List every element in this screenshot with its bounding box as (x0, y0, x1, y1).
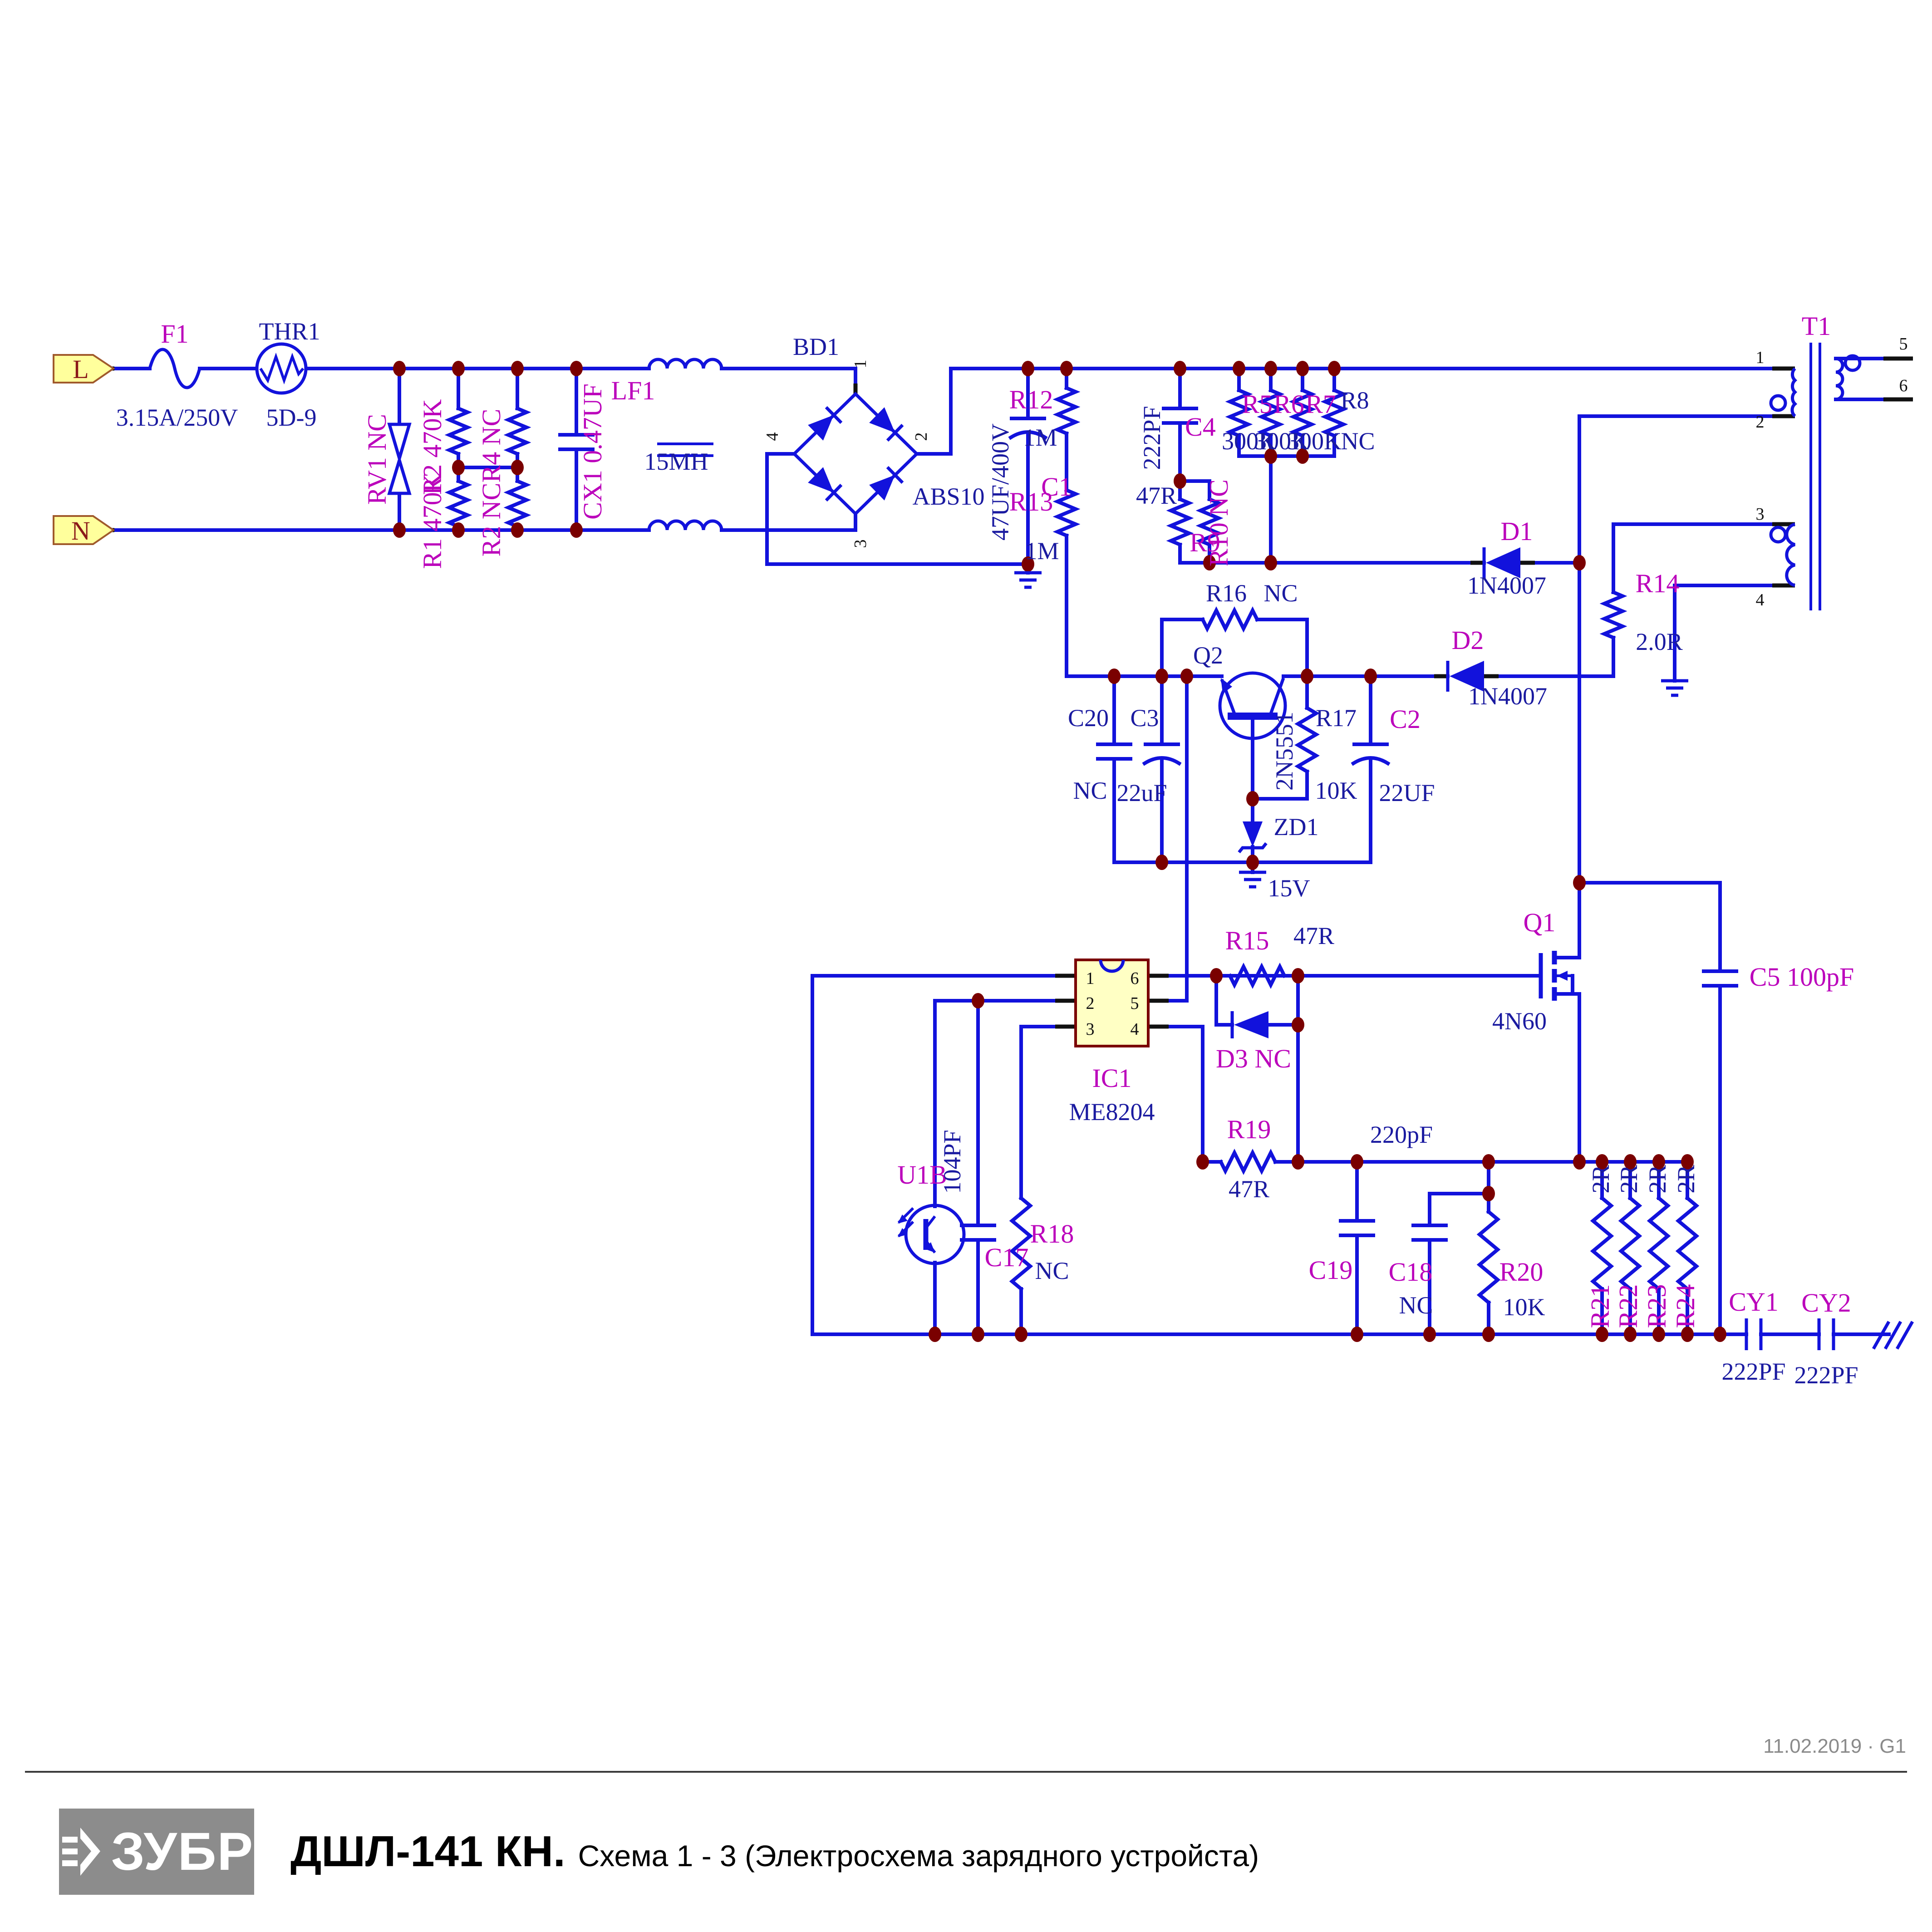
label-r20: R20 (1499, 1257, 1544, 1287)
label-r22-value: 2R (1615, 1165, 1642, 1193)
label-r14: R14 (1636, 569, 1680, 598)
label-r13-value: 1M (1025, 537, 1059, 565)
resistor-r1 (449, 481, 467, 526)
ic1-pin6: 6 (1131, 969, 1139, 988)
label-q2-value: 2N5551 (1271, 712, 1298, 791)
label-r13: R13 (1009, 487, 1053, 516)
junction-dot (1060, 361, 1073, 376)
resistor-r2b (508, 481, 526, 526)
label-c3-value: 22uF (1116, 779, 1167, 806)
zubr-logo: ЗУБР (59, 1809, 254, 1895)
label-lf1-value: 15MH (644, 448, 708, 475)
label-d2-value: 1N4007 (1468, 683, 1547, 710)
label-r8: R8 (1340, 387, 1369, 414)
label-r21-value: 2R (1587, 1165, 1614, 1193)
junction-dot (972, 1327, 984, 1342)
junction-dot (511, 522, 524, 538)
label-c4-value: 222PF (1138, 406, 1165, 470)
ic1-pin4: 4 (1131, 1020, 1139, 1039)
label-r10: R10 NC (1204, 479, 1234, 566)
junction-dot (1423, 1327, 1436, 1342)
junction-dot (1264, 555, 1277, 570)
label-r7: R7 (1305, 389, 1336, 419)
resistor-r17 (1298, 708, 1316, 772)
junction-dot (1573, 875, 1586, 890)
label-cy1: CY1 (1729, 1287, 1779, 1317)
t1-pin3: 3 (1756, 505, 1765, 524)
model-title: ДШЛ-141 КН. (290, 1827, 565, 1877)
title-row: ДШЛ-141 КН. Схема 1 - 3 (Электросхема за… (290, 1827, 1259, 1877)
fuse-icon (150, 349, 200, 388)
label-r17-value: 10K (1315, 777, 1357, 804)
choke-lf1-icon (649, 359, 722, 530)
junction-dot (1351, 1154, 1363, 1170)
resistor-r4 (508, 408, 526, 454)
label-rv1: RV1 NC (362, 414, 392, 505)
label-f1-value: 3.15A/250V (116, 404, 238, 431)
label-c18: C18 (1389, 1257, 1433, 1287)
label-r16: R16 (1206, 580, 1247, 607)
junction-dot (1155, 669, 1168, 684)
resistor-r16 (1203, 610, 1257, 629)
label-q1-value: 4N60 (1492, 1008, 1547, 1035)
label-r12: R12 (1009, 385, 1053, 414)
junction-dot (511, 460, 524, 475)
ic1-pin2: 2 (1086, 994, 1095, 1013)
junction-dot (1015, 1327, 1027, 1342)
label-r12-value: 1M (1023, 424, 1057, 451)
label-cy2: CY2 (1801, 1288, 1851, 1317)
resistor-r20 (1480, 1212, 1498, 1303)
thermistor-icon (257, 344, 306, 393)
label-r14-value: 2.0R (1636, 628, 1683, 655)
label-r24: R24 (1671, 1284, 1700, 1328)
junction-dot (1328, 361, 1341, 376)
ic1-pin3: 3 (1086, 1020, 1095, 1039)
label-r21: R21 (1585, 1284, 1615, 1328)
junction-dot (1301, 669, 1313, 684)
junction-dot (1108, 669, 1121, 684)
label-d3: D3 NC (1216, 1044, 1291, 1073)
t1-pin6: 6 (1899, 376, 1908, 395)
label-r9-value: 47R (1136, 482, 1177, 509)
junction-dot (1174, 361, 1186, 376)
resistor-r14 (1604, 592, 1622, 638)
label-r16-value: NC (1263, 580, 1298, 607)
junction-dot (972, 993, 984, 1008)
bd1-pin3: 3 (851, 540, 870, 548)
t1-pin2: 2 (1756, 413, 1765, 432)
junction-dot (1573, 1154, 1586, 1170)
label-lf1: LF1 (611, 376, 655, 405)
resistor-r12 (1057, 388, 1076, 433)
capacitor-cy2-icon (1819, 1318, 1834, 1350)
schematic-page: { "labels": { "term_l": "L", "term_n": "… (0, 0, 1932, 1932)
label-c19: C19 (1309, 1255, 1353, 1285)
label-q1: Q1 (1524, 908, 1556, 937)
wire (1216, 976, 1232, 1025)
junction-dot (1351, 1327, 1363, 1342)
label-c20: C20 (1068, 704, 1109, 732)
schema-subtitle: Схема 1 - 3 (Электросхема зарядного устр… (578, 1839, 1259, 1873)
junction-dot (1482, 1186, 1495, 1201)
label-d2: D2 (1452, 625, 1484, 655)
t1-pin1: 1 (1756, 348, 1765, 367)
label-c17: C17 (985, 1243, 1029, 1272)
junction-dot (452, 522, 465, 538)
footer-divider (25, 1771, 1907, 1773)
junction-dot (1292, 1017, 1304, 1032)
diode-d3-icon (1232, 1011, 1268, 1038)
revision-date: 11.02.2019 · G1 (1763, 1735, 1906, 1757)
optocoupler-u1b-icon (898, 1205, 964, 1263)
t1-pin5: 5 (1899, 334, 1908, 354)
footer: ЗУБР ДШЛ-141 КН. Схема 1 - 3 (Электросхе… (59, 1809, 1259, 1895)
zubr-arrow-icon (59, 1823, 103, 1880)
label-cy2-value: 222PF (1794, 1362, 1858, 1389)
ic1-pin1: 1 (1086, 969, 1095, 988)
label-r24-value: 2R (1672, 1165, 1700, 1193)
label-r19: R19 (1227, 1115, 1271, 1144)
label-c4: C4 (1185, 412, 1216, 442)
label-r23-value: 2R (1644, 1165, 1671, 1193)
ground-symbol (1239, 872, 1266, 887)
junction-dot (1681, 1327, 1694, 1342)
junction-dot (1364, 669, 1377, 684)
label-cx1: CX1 0.47UF (578, 383, 607, 520)
capacitor-cy1-icon (1746, 1318, 1761, 1350)
varistor-icon (389, 424, 409, 493)
ground-symbol (1014, 573, 1042, 587)
label-c3: C3 (1130, 704, 1159, 732)
label-r7-value: 300K (1287, 428, 1342, 455)
label-r8-value: NC (1341, 428, 1375, 455)
label-c2: C2 (1390, 704, 1421, 734)
t1-pin4: 4 (1756, 590, 1765, 610)
label-d1: D1 (1501, 516, 1533, 546)
label-zd1-value: 15V (1268, 875, 1310, 902)
label-r20-value: 10K (1503, 1293, 1545, 1321)
junction-dot (393, 522, 406, 538)
junction-dot (1573, 555, 1586, 570)
junction-dot (452, 361, 465, 376)
ground-symbol (1661, 681, 1688, 695)
junction-dot (1196, 1154, 1209, 1170)
junction-dot (1482, 1327, 1495, 1342)
label-r4: R4 NC (477, 409, 506, 483)
label-zd1: ZD1 (1274, 813, 1319, 841)
junction-dot (570, 522, 583, 538)
bd1-pin1: 1 (851, 360, 870, 369)
junction-dot (1482, 1154, 1495, 1170)
label-c1-value: 47UF/400V (987, 423, 1014, 541)
junction-dot (1210, 968, 1223, 983)
resistor-r19 (1221, 1153, 1275, 1171)
wire (1067, 536, 1114, 676)
bridge-rectifier-icon (794, 394, 917, 514)
label-t1: T1 (1802, 311, 1831, 341)
label-r18-value: NC (1035, 1257, 1069, 1284)
terminal-l-label: L (73, 354, 88, 384)
label-d1-value: 1N4007 (1467, 572, 1546, 599)
resistor-r22 (1621, 1198, 1639, 1289)
junction-dot (1596, 1327, 1608, 1342)
label-r15-value: 47R (1293, 922, 1334, 949)
label-r5: R5 (1242, 389, 1273, 419)
label-r18: R18 (1030, 1219, 1074, 1249)
junction-dot (570, 361, 583, 376)
label-r6: R6 (1273, 389, 1304, 419)
junction-dot (1264, 361, 1277, 376)
wire (722, 369, 855, 394)
junction-dot (1624, 1327, 1637, 1342)
label-r2b: R2 NC (477, 483, 506, 557)
label-r15: R15 (1225, 926, 1269, 955)
junction-dot (1155, 855, 1168, 870)
label-r22: R22 (1613, 1284, 1643, 1328)
label-c2-value: 22UF (1379, 779, 1435, 806)
zubr-logo-text: ЗУБР (111, 1821, 254, 1883)
terminal-n-label: N (71, 516, 90, 546)
label-cy1-value: 222PF (1721, 1358, 1785, 1385)
junction-dot (1292, 968, 1304, 983)
label-bd1: BD1 (793, 333, 839, 360)
resistor-r21 (1593, 1198, 1611, 1289)
resistor-r24 (1678, 1198, 1696, 1289)
resistor-r15 (1230, 967, 1284, 985)
resistor-r2a (449, 408, 467, 454)
bd1-pin4: 4 (763, 433, 782, 441)
label-q2: Q2 (1193, 642, 1223, 669)
junction-dot (1233, 361, 1245, 376)
junction-dot (1180, 669, 1193, 684)
resistor-r23 (1650, 1198, 1668, 1289)
wire (1021, 1027, 1055, 1198)
label-r1: R1 470K (418, 473, 447, 569)
junction-dot (1246, 791, 1259, 806)
label-r17: R17 (1316, 704, 1357, 732)
wire (1169, 676, 1187, 1001)
junction-dot (393, 361, 406, 376)
label-r23: R23 (1642, 1284, 1671, 1328)
label-ic1: IC1 (1092, 1063, 1132, 1093)
junction-dot (1296, 361, 1309, 376)
label-c17-value: 104PF (939, 1130, 966, 1194)
junction-dot (511, 361, 524, 376)
wire (722, 514, 855, 530)
wire (1169, 1027, 1221, 1162)
label-c19-value: 220pF (1370, 1121, 1433, 1148)
junction-dot (929, 1327, 941, 1342)
label-thr1-value: 5D-9 (266, 404, 317, 431)
label-thr1: THR1 (259, 318, 320, 345)
wire (1257, 619, 1307, 676)
junction-dot (1714, 1327, 1726, 1342)
junction-dot (1246, 855, 1259, 870)
bd1-pin2: 2 (912, 433, 931, 441)
wire (1579, 883, 1720, 971)
label-ic1-value: ME8204 (1069, 1098, 1155, 1126)
label-r19-value: 47R (1229, 1175, 1269, 1203)
label-f1: F1 (161, 319, 188, 349)
ic1-pin5: 5 (1131, 994, 1139, 1013)
label-c20-value: NC (1073, 777, 1107, 804)
junction-dot (1652, 1327, 1665, 1342)
label-bd1-value: ABS10 (912, 483, 984, 510)
label-c18-value: NC (1399, 1292, 1433, 1319)
zener-zd1-icon (1239, 821, 1266, 852)
label-c5: C5 100pF (1750, 962, 1854, 992)
junction-dot (1292, 1154, 1304, 1170)
circuit-schematic: L N F1 3.15A/250V THR1 5D-9 RV1 NC R2 47… (0, 0, 1932, 1772)
transformer-t1-icon (1771, 343, 1860, 610)
junction-dot (1022, 361, 1034, 376)
junction-dot (452, 460, 465, 475)
labels: L N F1 3.15A/250V THR1 5D-9 RV1 NC R2 47… (71, 311, 1907, 1757)
